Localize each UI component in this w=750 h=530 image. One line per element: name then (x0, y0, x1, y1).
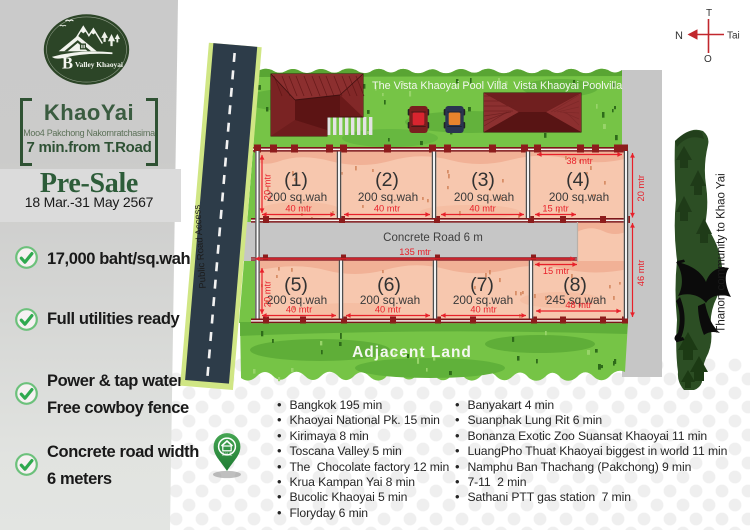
svg-text:20 mtr: 20 mtr (263, 281, 273, 307)
svg-text:200 sq.wah: 200 sq.wah (358, 190, 418, 204)
svg-text:15 mtr: 15 mtr (543, 266, 569, 276)
svg-text:O: O (704, 54, 712, 65)
svg-text:20 mtr: 20 mtr (636, 175, 646, 201)
svg-text:200 sq.wah: 200 sq.wah (454, 190, 514, 204)
svg-text:Thanon community to Khao Yai: Thanon community to Khao Yai (716, 173, 728, 332)
svg-text:38 mtr: 38 mtr (566, 156, 592, 166)
svg-text:(1): (1) (284, 169, 308, 191)
svg-text:40 mtr: 40 mtr (285, 204, 311, 214)
svg-text:40 mtr: 40 mtr (375, 305, 401, 315)
svg-text:SALE: SALE (222, 452, 233, 457)
svg-text:(4): (4) (566, 169, 590, 191)
svg-text:(3): (3) (471, 169, 495, 191)
svg-text:40 mtr: 40 mtr (374, 204, 400, 214)
svg-text:200 sq.wah: 200 sq.wah (549, 190, 609, 204)
svg-text:15 mtr: 15 mtr (542, 204, 568, 214)
svg-text:Tai: Tai (727, 31, 740, 42)
svg-text:200 sq.wah: 200 sq.wah (267, 190, 327, 204)
svg-text:40 mtr: 40 mtr (286, 305, 312, 315)
svg-text:135 mtr: 135 mtr (399, 247, 431, 257)
svg-text:The Vista Khaoyai Pool Villa: The Vista Khaoyai Pool Villa Vista Khaoy… (372, 80, 622, 92)
svg-text:(2): (2) (375, 169, 399, 191)
svg-text:N: N (675, 30, 683, 42)
svg-text:Concrete Road 6 m: Concrete Road 6 m (383, 232, 483, 244)
svg-text:40 mtr: 40 mtr (470, 305, 496, 315)
svg-text:48 mtr: 48 mtr (565, 300, 591, 310)
svg-text:T: T (706, 8, 712, 19)
svg-text:46 mtr: 46 mtr (636, 260, 646, 286)
svg-text:20 mtr: 20 mtr (263, 174, 273, 200)
svg-text:40 mtr: 40 mtr (469, 204, 495, 214)
svg-text:Adjacent Land: Adjacent Land (352, 344, 472, 361)
